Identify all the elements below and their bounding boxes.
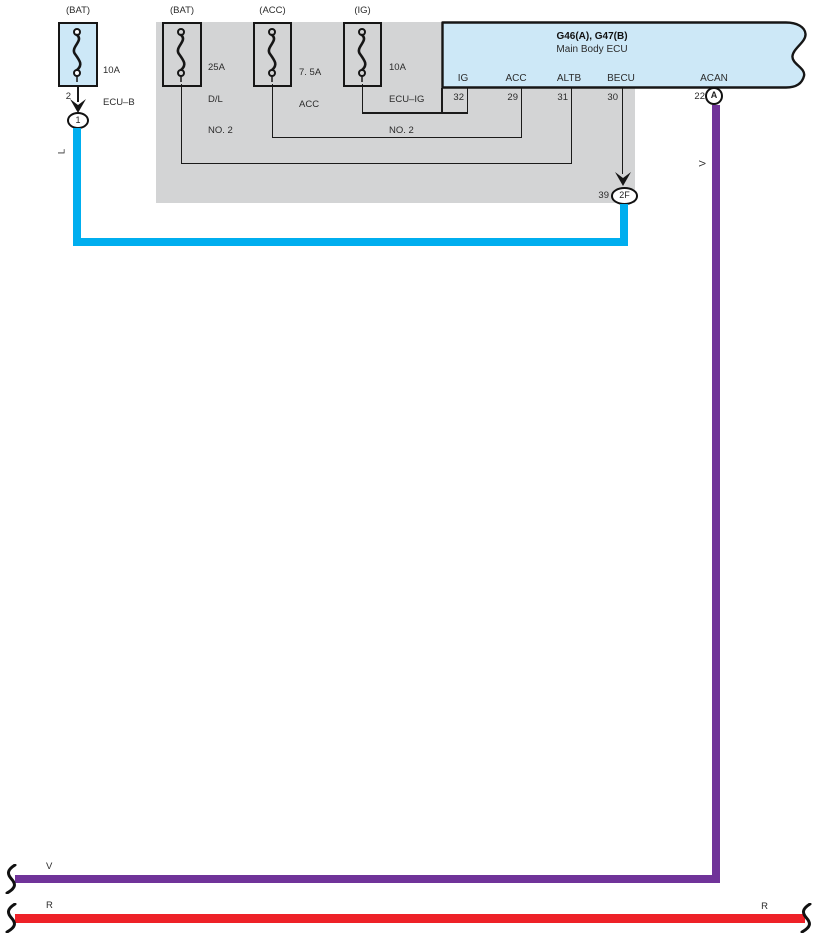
fuse-ecuig-box xyxy=(343,22,382,87)
fuse-dl-label: 25A D/L NO. 2 xyxy=(208,42,233,158)
arrow-down-icon xyxy=(615,172,631,186)
connector2f-pin-number: 39 xyxy=(579,190,609,201)
fuse-dl-source-label: (BAT) xyxy=(170,6,194,17)
ecu-pin-number-29: 29 xyxy=(488,92,518,103)
ecu-title: G46(A), G47(B) xyxy=(556,31,627,42)
ecu-pin-label-ig: IG xyxy=(458,73,469,84)
fuse-symbol-icon xyxy=(261,26,283,82)
connector1-pin-number: 2 xyxy=(41,91,71,102)
wire-break-squiggle-icon xyxy=(4,903,18,933)
ecu-pin-label-acc: ACC xyxy=(505,73,526,84)
wire-becu-drop xyxy=(622,88,624,174)
connector-a-circle: A xyxy=(705,87,723,105)
wire-ig-vertical xyxy=(362,84,364,113)
violet-wire-horizontal xyxy=(15,875,720,883)
fuse-ecuig-name: ECU–IG xyxy=(389,95,424,106)
wire-pin31-drop xyxy=(571,88,573,164)
wire-dl-horizontal xyxy=(181,163,572,165)
wire-dl-vertical xyxy=(181,84,183,164)
connector-1-oval: 1 xyxy=(67,112,89,129)
ecu-pin-number-32: 32 xyxy=(434,92,464,103)
wire-pin29-drop xyxy=(521,88,523,138)
fuse-ecuig-label: 10A ECU–IG NO. 2 xyxy=(389,42,424,158)
fuse-ecuig-rating: 10A xyxy=(389,63,424,74)
fuse-dl-name: D/L xyxy=(208,95,233,106)
connector-2f-oval: 2F xyxy=(611,187,638,205)
fuse-acc-box xyxy=(253,22,292,87)
blue-wire-vertical-left xyxy=(73,128,81,246)
fuse-acc-label: 7. 5A ACC xyxy=(299,47,321,131)
arrow-down-icon xyxy=(70,99,86,113)
ecu-pin-number-30: 30 xyxy=(588,92,618,103)
ecu-pin-label-becu: BECU xyxy=(607,73,635,84)
fuse-ecub-label: 10A ECU–B xyxy=(103,45,135,129)
wire-break-squiggle-icon xyxy=(4,864,18,894)
fuse-acc-rating: 7. 5A xyxy=(299,68,321,79)
violet-wire-vertical xyxy=(712,105,720,883)
fuse-symbol-icon xyxy=(170,26,192,82)
violet-wire-color-code-vertical: V xyxy=(698,155,709,173)
fuse-symbol-icon xyxy=(351,26,373,82)
fuse-acc-name: ACC xyxy=(299,100,321,111)
blue-wire-color-code: L xyxy=(57,143,68,161)
red-wire-color-code-right: R xyxy=(738,901,768,912)
fuse-ecub-source-label: (BAT) xyxy=(66,6,90,17)
fuse-ecub-box xyxy=(58,22,98,87)
fuse-dl-name2: NO. 2 xyxy=(208,126,233,137)
blue-wire-vertical-right xyxy=(620,204,628,246)
ecu-subtitle: Main Body ECU xyxy=(556,44,627,55)
fuse-dl-rating: 25A xyxy=(208,63,233,74)
ecu-pin-label-acan: ACAN xyxy=(700,73,728,84)
fuse-ecub-name: ECU–B xyxy=(103,98,135,109)
violet-wire-color-code: V xyxy=(46,862,52,873)
ecu-pin-number-31: 31 xyxy=(538,92,568,103)
fuse-ecub-rating: 10A xyxy=(103,66,135,77)
wire-break-squiggle-icon xyxy=(799,903,813,933)
ecu-pin-label-altb: ALTB xyxy=(557,73,581,84)
blue-wire-horizontal xyxy=(73,238,628,246)
wiring-diagram-canvas: (BAT) 10A ECU–B 2 1 (BAT) 25A D/L NO. 2 … xyxy=(0,0,817,941)
ecu-pin-number-22: 22 xyxy=(675,91,705,102)
fuse-dl-box xyxy=(162,22,202,87)
fuse-acc-source-label: (ACC) xyxy=(259,6,285,17)
red-wire-color-code-left: R xyxy=(46,901,53,912)
fuse-symbol-icon xyxy=(66,26,88,82)
wire-acc-vertical xyxy=(272,84,274,138)
fuse-ecuig-name2: NO. 2 xyxy=(389,126,424,137)
fuse-ecuig-source-label: (IG) xyxy=(354,6,370,17)
red-wire-horizontal xyxy=(15,914,805,923)
